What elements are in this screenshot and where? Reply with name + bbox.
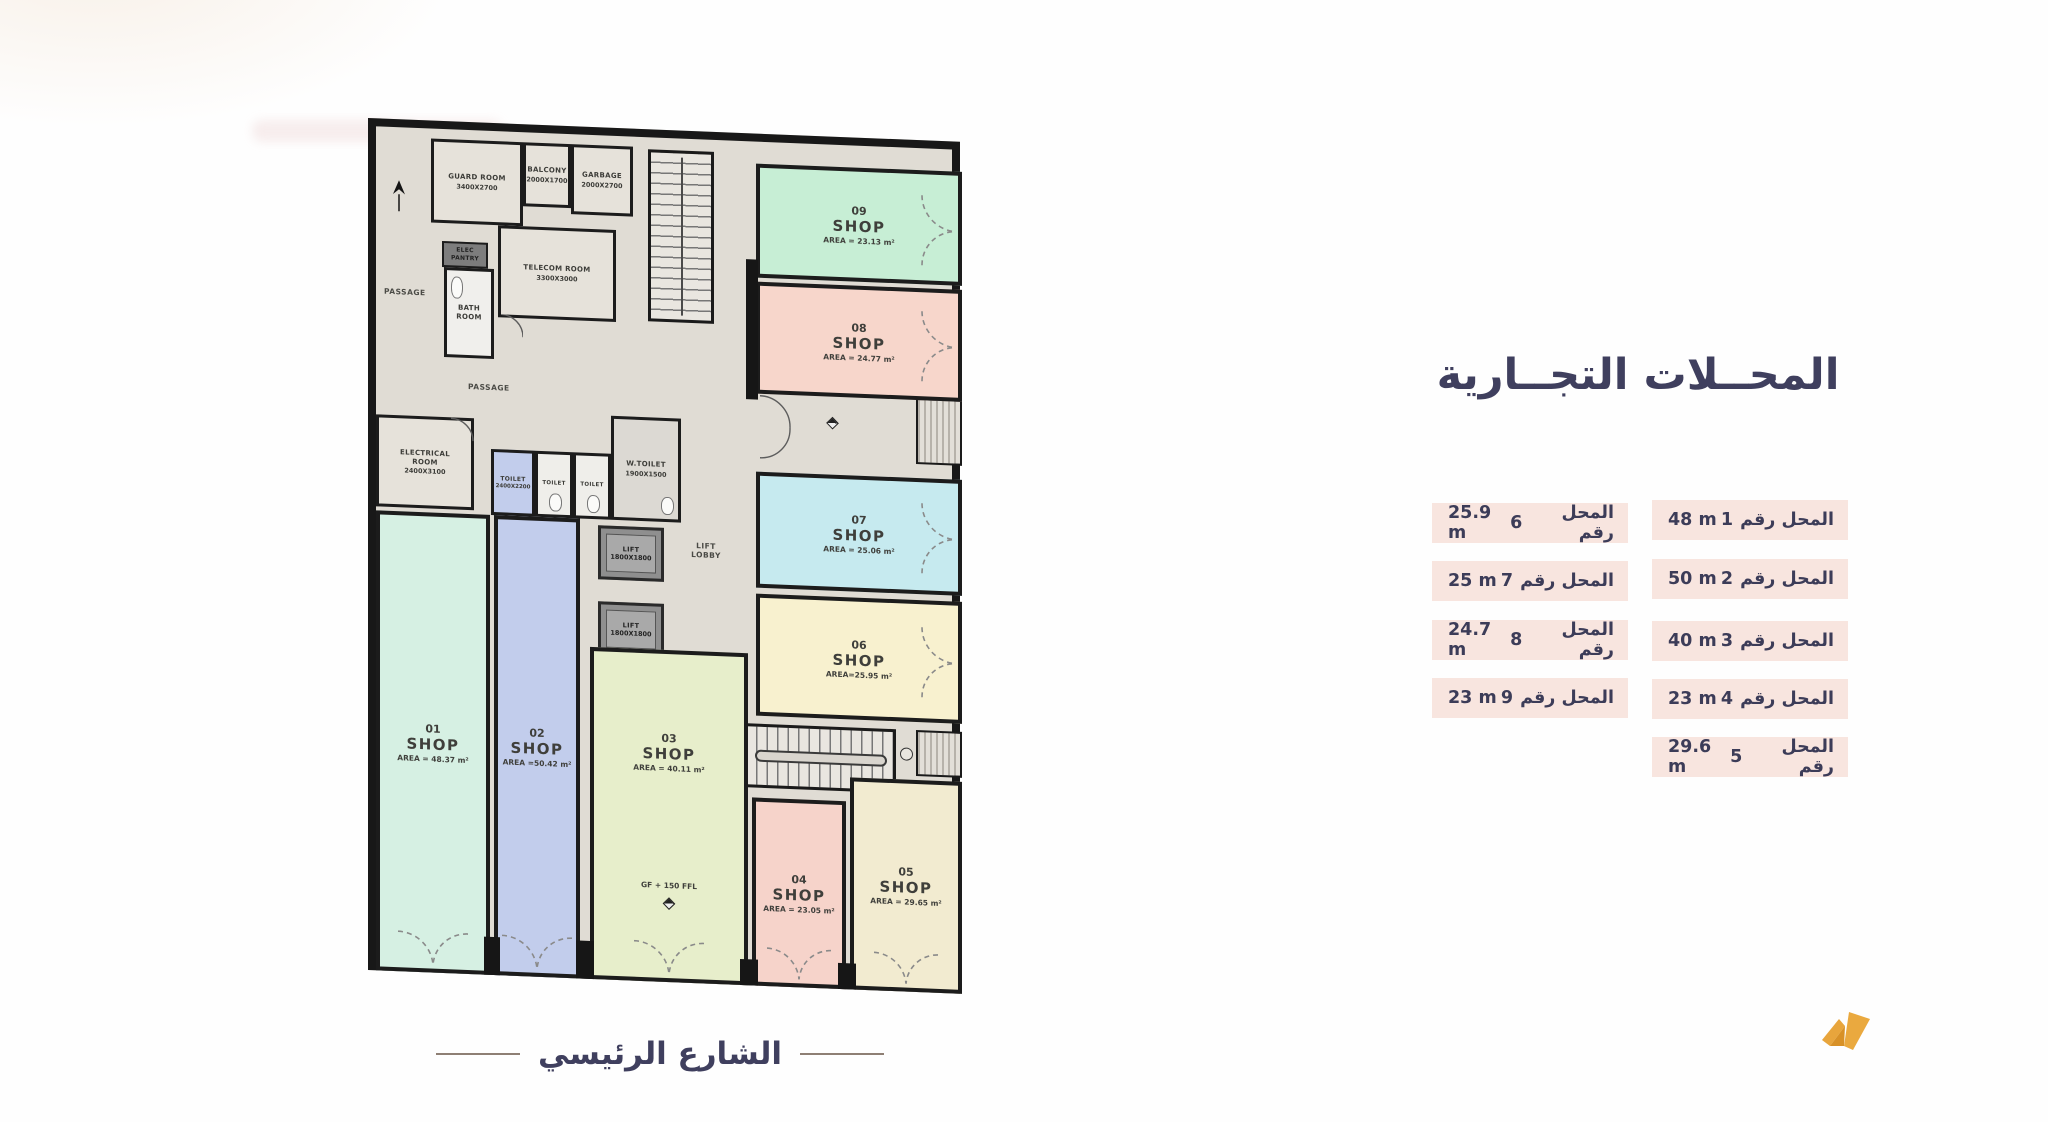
room-toilet-blue: TOILET 2400X2200 [491, 449, 535, 517]
shop7-area: 25 m [1448, 571, 1497, 591]
shop2-label: المحل رقم [1740, 569, 1834, 589]
level-marker [663, 897, 676, 910]
level-marker [826, 417, 839, 430]
page: { "legend": { "title": "المحــلات التجــ… [0, 0, 2048, 1122]
room-electrical: ELECTRICAL ROOM 2400X3100 [376, 414, 474, 510]
room-toilet-a: TOILET [535, 451, 573, 519]
street-dash-right [800, 1053, 884, 1055]
legend-row-3: 40 m المحل رقم3 [1652, 621, 1848, 661]
shop-07: 07 SHOP AREA = 25.06 m² [756, 472, 962, 596]
room-bath: BATH ROOM [444, 267, 494, 359]
shop5-area: 29.6 m [1668, 737, 1730, 777]
shop1-num: 1 [1721, 510, 1733, 530]
shop-05: 05 SHOP AREA = 29.65 m² [850, 777, 962, 993]
shop-09: 09 SHOP AREA = 23.13 m² [756, 164, 962, 286]
shop5-label: المحل رقم [1749, 737, 1834, 777]
shop06-door [921, 624, 955, 701]
shop3-num: 3 [1721, 631, 1733, 651]
shop4-area: 23 m [1668, 689, 1717, 709]
shop2-area: 50 m [1668, 569, 1717, 589]
wall-pier [576, 940, 594, 979]
shop2-num: 2 [1721, 569, 1733, 589]
passage-label-1: PASSAGE [384, 287, 426, 298]
shop05-door [871, 951, 941, 986]
shop03-ffl-note: GF + 150 FFL [641, 880, 697, 891]
shop9-num: 9 [1501, 688, 1513, 708]
shop-01: 01 SHOP AREA = 48.37 m² [376, 510, 490, 975]
corner-decoration [0, 0, 460, 130]
shop9-area: 23 m [1448, 688, 1497, 708]
wc-fixture [587, 495, 600, 514]
street-label-group: الشارع الرئيسي [400, 1028, 920, 1080]
shop3-area: 40 m [1668, 631, 1717, 651]
shop8-num: 8 [1510, 630, 1522, 650]
north-arrow-icon [390, 179, 408, 214]
room-elec-pantry: ELEC PANTRY [442, 241, 488, 269]
shop7-num: 7 [1501, 571, 1513, 591]
wall-pier [740, 959, 758, 986]
shop9-label: المحل رقم [1520, 688, 1614, 708]
legend-row-1: 48 m المحل رقم1 [1652, 500, 1848, 540]
legend-row-5: 29.6 m المحل رقم5 [1652, 737, 1848, 777]
room-guard: GUARD ROOM 3400X2700 [431, 139, 523, 227]
street-label: الشارع الرئيسي [538, 1036, 782, 1072]
legend-row-6: 25.9 m المحل رقم6 [1432, 503, 1628, 543]
shop5-num: 5 [1730, 747, 1742, 767]
room-toilet-b: TOILET [573, 452, 611, 520]
bath-fixture [451, 276, 463, 298]
passage-label-2: PASSAGE [468, 382, 510, 393]
legend-row-2: 50 m المحل رقم2 [1652, 559, 1848, 599]
legend-row-8: 24.7 m المحل رقم8 [1432, 620, 1628, 660]
shop04-door [764, 947, 834, 982]
room-telecom: TELECOM ROOM 3300X3000 [498, 225, 616, 322]
floor-plan: GUARD ROOM 3400X2700 BALCONY 2000X1700 G… [368, 118, 960, 994]
legend-title: المحــلات التجــارية [1408, 350, 1868, 400]
room-garbage: GARBAGE 2000X2700 [571, 144, 633, 216]
shop7-label: المحل رقم [1520, 571, 1614, 591]
shop6-num: 6 [1510, 513, 1522, 533]
shop-03: 03 SHOP AREA = 40.11 m² GF + 150 FFL [590, 647, 748, 985]
entrance-ramp-hatch [916, 730, 962, 778]
shop6-area: 25.9 m [1448, 503, 1510, 543]
shop1-area: 48 m [1668, 510, 1717, 530]
shop8-label: المحل رقم [1529, 620, 1614, 660]
entrance-double-door [758, 394, 792, 461]
room-wtoilet: W.TOILET 1900X1500 [611, 416, 681, 523]
shop8-area: 24.7 m [1448, 620, 1510, 660]
reference-bubble [900, 747, 913, 761]
shop07-door [921, 500, 955, 577]
shop6-label: المحل رقم [1529, 503, 1614, 543]
shop1-label: المحل رقم [1740, 510, 1834, 530]
lift-lobby-label: LIFT LOBBY [688, 541, 724, 560]
shop3-label: المحل رقم [1740, 631, 1834, 651]
shop01-door [395, 930, 471, 967]
wc-fixture [549, 493, 562, 512]
shop08-door [921, 308, 955, 385]
legend-row-4: 23 m المحل رقم4 [1652, 679, 1848, 719]
shop4-label: المحل رقم [1740, 689, 1834, 709]
legend-row-9: 23 m المحل رقم9 [1432, 678, 1628, 718]
shop03-door [631, 940, 707, 977]
shop-06: 06 SHOP AREA=25.95 m² [756, 594, 962, 724]
wall-pier [746, 259, 758, 399]
wall-pier [838, 963, 856, 990]
wall-pier [484, 937, 500, 976]
shop09-door [921, 192, 955, 269]
shop4-num: 4 [1721, 689, 1733, 709]
shop02-door [499, 934, 575, 971]
entrance-hatch [916, 398, 962, 466]
legend-row-7: 25 m المحل رقم7 [1432, 561, 1628, 601]
wc-fixture [661, 497, 674, 516]
shop-02: 02 SHOP AREA =50.42 m² [494, 515, 580, 978]
room-balcony: BALCONY 2000X1700 [523, 142, 571, 208]
shop-04: 04 SHOP AREA = 23.05 m² [752, 797, 846, 989]
street-dash-left [436, 1053, 520, 1055]
staircase-upper [648, 149, 714, 324]
lift-1: LIFT 1800X1800 [598, 525, 664, 582]
shop-08: 08 SHOP AREA = 24.77 m² [756, 282, 962, 402]
brand-wing-icon [1818, 1006, 1876, 1054]
